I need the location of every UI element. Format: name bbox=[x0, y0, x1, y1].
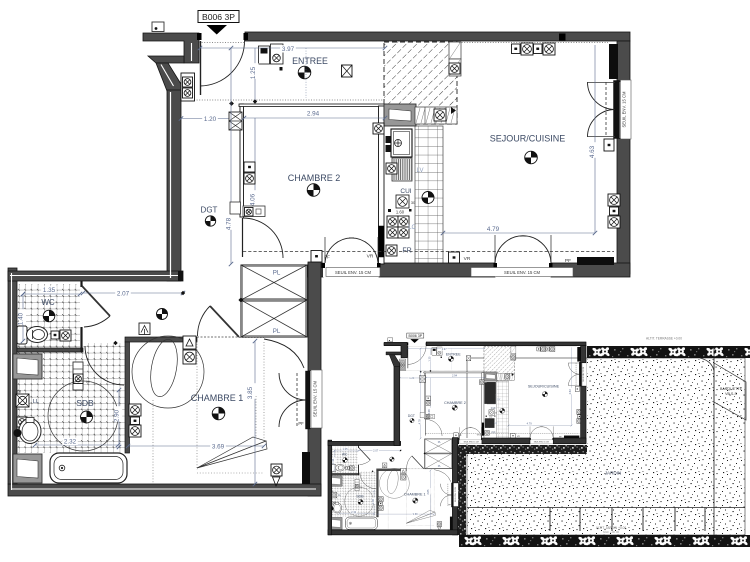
svg-text:SDB: SDB bbox=[76, 398, 94, 408]
svg-text:1.25: 1.25 bbox=[250, 66, 257, 79]
svg-text:WC: WC bbox=[41, 298, 55, 307]
svg-text:NGF +00.00: NGF +00.00 bbox=[603, 530, 620, 534]
svg-text:3.69: 3.69 bbox=[212, 444, 225, 451]
svg-text:SEUIL ENV. 15 CM: SEUIL ENV. 15 CM bbox=[622, 91, 627, 128]
svg-text:CUI: CUI bbox=[400, 188, 411, 195]
svg-text:SEJOUR/CUISINE: SEJOUR/CUISINE bbox=[490, 134, 566, 144]
svg-text:1.60: 1.60 bbox=[396, 210, 405, 215]
svg-text:ENTREE: ENTREE bbox=[292, 56, 328, 66]
svg-text:B006 3P: B006 3P bbox=[202, 12, 235, 22]
svg-text:M: M bbox=[86, 380, 89, 384]
svg-text:JARDIN: JARDIN bbox=[605, 471, 622, 476]
svg-text:SEUIL ENV. 15 CM: SEUIL ENV. 15 CM bbox=[313, 380, 318, 417]
svg-text:4.63: 4.63 bbox=[589, 145, 596, 158]
svg-text:2.90: 2.90 bbox=[114, 409, 121, 422]
svg-text:BANQUETTE: BANQUETTE bbox=[720, 387, 743, 391]
svg-text:1.35: 1.35 bbox=[43, 287, 56, 294]
svg-text:2.94: 2.94 bbox=[307, 111, 320, 118]
svg-text:CHAMBRE 2: CHAMBRE 2 bbox=[288, 173, 341, 183]
svg-text:18: 18 bbox=[17, 390, 21, 394]
svg-text:SEUIL ENV. 15 CM: SEUIL ENV. 15 CM bbox=[504, 270, 541, 275]
svg-text:3.85: 3.85 bbox=[247, 386, 254, 399]
svg-text:VR: VR bbox=[367, 254, 374, 260]
svg-text:CHAMBRE 1: CHAMBRE 1 bbox=[191, 393, 244, 403]
svg-text:LL: LL bbox=[33, 399, 40, 405]
svg-text:PF: PF bbox=[324, 255, 330, 260]
svg-text:2.07: 2.07 bbox=[117, 291, 130, 298]
svg-text:2.32: 2.32 bbox=[64, 439, 77, 446]
svg-text:30: 30 bbox=[411, 201, 415, 205]
svg-text:1.20: 1.20 bbox=[204, 116, 217, 123]
svg-text:SEUIL ENV. 15 CM: SEUIL ENV. 15 CM bbox=[335, 270, 372, 275]
svg-text:DGT: DGT bbox=[201, 206, 218, 215]
svg-text:FR: FR bbox=[402, 248, 411, 255]
svg-text:VR: VR bbox=[464, 256, 471, 262]
svg-text:4.78: 4.78 bbox=[226, 217, 233, 230]
svg-text:VB S-S: VB S-S bbox=[725, 392, 737, 396]
svg-text:PF: PF bbox=[298, 421, 304, 426]
svg-text:PL: PL bbox=[273, 270, 281, 277]
svg-text:1.40: 1.40 bbox=[18, 312, 25, 325]
svg-text:PF: PF bbox=[565, 258, 571, 264]
svg-text:4.06: 4.06 bbox=[250, 193, 257, 206]
svg-text:3.97: 3.97 bbox=[282, 46, 295, 53]
svg-text:4.79: 4.79 bbox=[487, 226, 500, 233]
svg-text:LV: LV bbox=[417, 168, 424, 174]
svg-text:PL: PL bbox=[273, 328, 281, 335]
svg-text:LC: LC bbox=[408, 225, 416, 231]
svg-text:ALTIT. TERRASSE +0.00: ALTIT. TERRASSE +0.00 bbox=[646, 337, 682, 341]
